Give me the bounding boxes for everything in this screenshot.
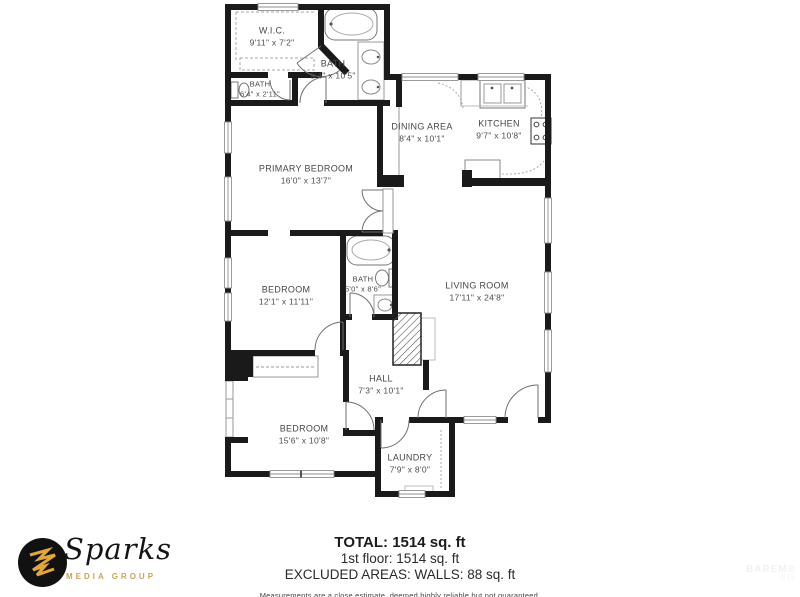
corner-watermark: BAREM® NTS	[746, 565, 796, 582]
floor-plan-page: W.I.C. 9'11" x 7'2" BATH 9'4" x 10'5" BA…	[0, 0, 800, 597]
room-dims: 17'11" x 24'8"	[450, 292, 505, 302]
room-dims: 15'6" x 10'8"	[279, 435, 330, 445]
room-name: W.I.C.	[259, 25, 285, 35]
room-name: HALL	[369, 373, 393, 383]
room-label-bedroom-middle: BEDROOM 12'1" x 11'11"	[259, 284, 313, 307]
room-label-wic: W.I.C. 9'11" x 7'2"	[250, 25, 295, 48]
fireplace	[393, 313, 421, 365]
room-label-primary-bedroom: PRIMARY BEDROOM 16'0" x 13'7"	[259, 163, 353, 186]
room-name: BATH	[353, 274, 374, 283]
room-name: LIVING ROOM	[445, 280, 508, 290]
room-name: BATH	[250, 79, 271, 88]
room-name: BATH	[321, 58, 346, 68]
logo-subtitle: MEDIA GROUP	[66, 572, 156, 581]
watermark-line1: BAREM®	[746, 565, 796, 575]
room-dims: 5'0" x 8'6"	[345, 284, 381, 293]
room-label-hall: HALL 7'3" x 10'1"	[358, 373, 404, 396]
floor-plan-drawing	[0, 0, 800, 597]
room-name: PRIMARY BEDROOM	[259, 163, 353, 173]
room-name: KITCHEN	[478, 118, 520, 128]
room-label-living-room: LIVING ROOM 17'11" x 24'8"	[445, 280, 508, 303]
room-dims: 6'4" x 2'11"	[240, 89, 280, 98]
room-name: BEDROOM	[280, 423, 329, 433]
room-label-bath-small: BATH 6'4" x 2'11"	[240, 79, 280, 99]
room-name: LAUNDRY	[388, 452, 433, 462]
room-name: BEDROOM	[262, 284, 311, 294]
logo-wordmark: Sparks	[64, 532, 172, 566]
room-dims: 9'4" x 10'5"	[310, 70, 356, 80]
room-dims: 12'1" x 11'11"	[259, 296, 313, 306]
room-dims: 7'3" x 10'1"	[358, 385, 404, 395]
room-dims: 8'4" x 10'1"	[399, 133, 445, 143]
logo-s-mark-icon	[18, 538, 67, 587]
room-label-bath-hall: BATH 5'0" x 8'6"	[345, 274, 381, 294]
room-dims: 9'7" x 10'8"	[476, 130, 522, 140]
logo-badge	[18, 538, 67, 587]
room-label-bath-main: BATH 9'4" x 10'5"	[310, 58, 356, 81]
room-name: DINING AREA	[391, 121, 452, 131]
sparks-media-group-logo: Sparks MEDIA GROUP	[16, 536, 186, 591]
room-dims: 9'11" x 7'2"	[250, 37, 295, 47]
disclaimer-text: Measurements are a close estimate, deeme…	[0, 591, 800, 597]
room-label-kitchen: KITCHEN 9'7" x 10'8"	[476, 118, 522, 141]
room-label-dining: DINING AREA 8'4" x 10'1"	[391, 121, 452, 144]
room-dims: 7'9" x 8'0"	[390, 464, 430, 474]
watermark-line2: NTS	[746, 575, 796, 582]
room-label-bedroom-rear: BEDROOM 15'6" x 10'8"	[279, 423, 330, 446]
room-dims: 16'0" x 13'7"	[281, 175, 332, 185]
room-label-laundry: LAUNDRY 7'9" x 8'0"	[388, 452, 433, 475]
